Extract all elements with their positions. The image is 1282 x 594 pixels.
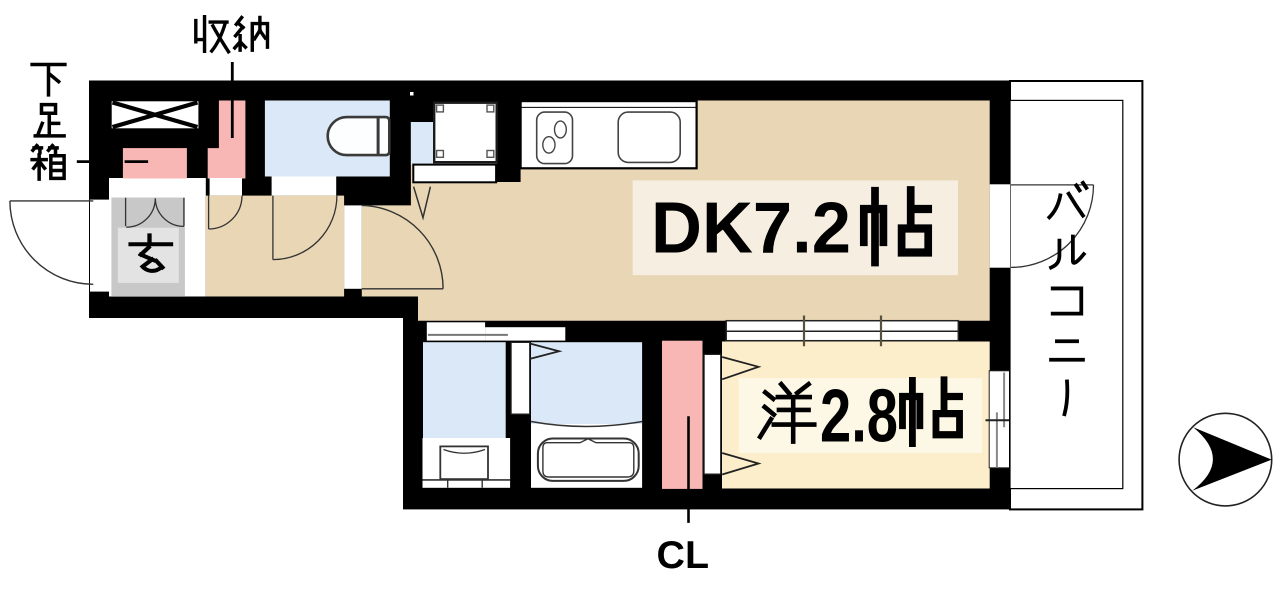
svg-text:2.8: 2.8 bbox=[820, 373, 898, 457]
svg-text:DK7.2: DK7.2 bbox=[651, 188, 851, 268]
svg-text:CL: CL bbox=[657, 534, 710, 577]
